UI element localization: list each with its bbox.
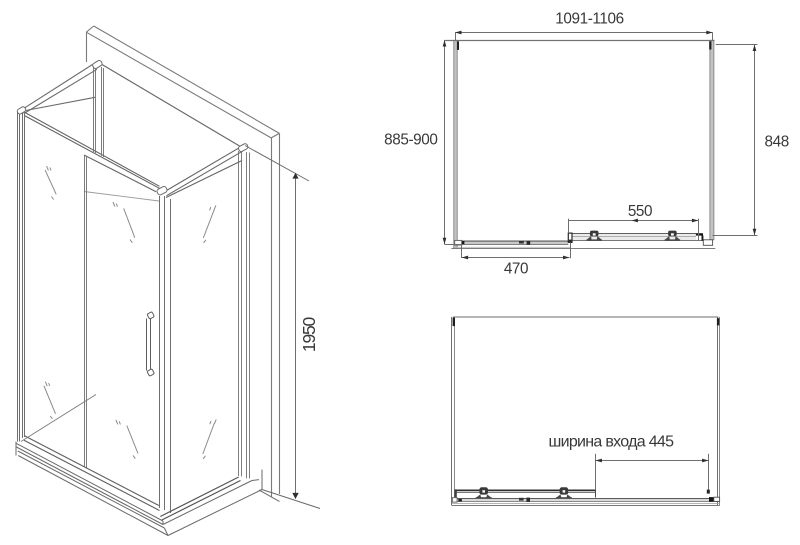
svg-text:885-900: 885-900: [384, 132, 437, 149]
svg-text:ширина входа 445: ширина входа 445: [548, 433, 674, 450]
svg-text:550: 550: [628, 203, 652, 220]
svg-text:470: 470: [504, 261, 528, 278]
svg-text:1950: 1950: [299, 316, 319, 352]
svg-text:1091-1106: 1091-1106: [555, 11, 623, 28]
svg-text:848: 848: [765, 134, 789, 151]
